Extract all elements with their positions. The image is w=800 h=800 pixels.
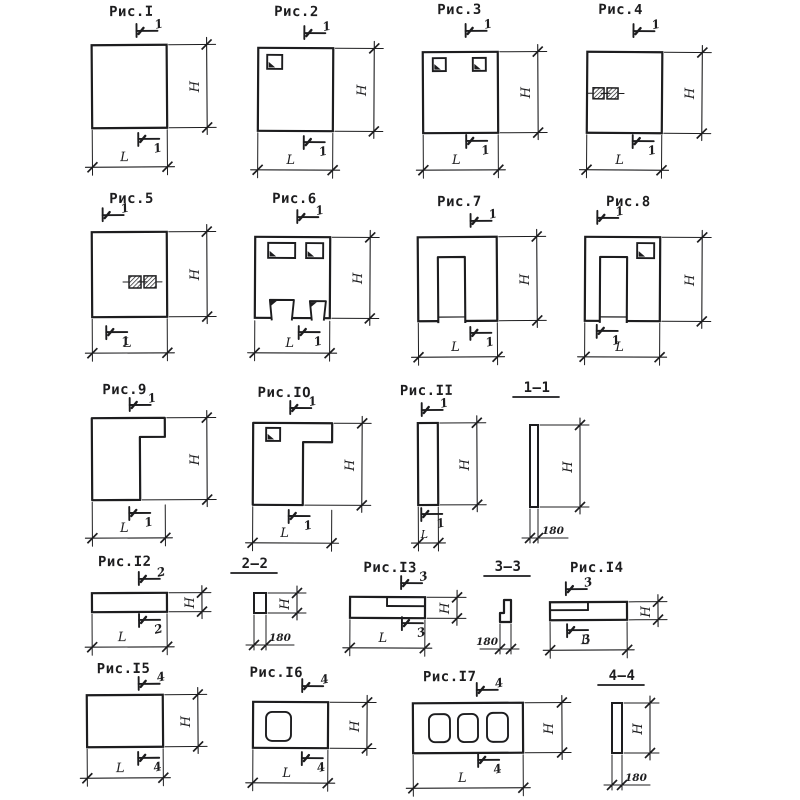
dim-label-l: L [420, 528, 428, 541]
cut-number: 1 [314, 203, 325, 218]
dim-label-h: H [188, 268, 203, 281]
section-profile [254, 593, 266, 613]
figure-ris-15: Рис.I544HL [80, 660, 208, 786]
figure-title: Рис.7 [437, 194, 482, 210]
figure-ris-16: Рис.I644HL [246, 665, 377, 792]
dim-label-l: L [122, 336, 132, 351]
cut-number: 2 [155, 564, 167, 580]
figure-title: Рис.IO [258, 385, 312, 401]
section-view-1-1: 1—1H180 [513, 380, 589, 543]
cut-number: 1 [317, 144, 328, 159]
section-profile [530, 425, 538, 507]
dim-label-l: L [450, 340, 460, 355]
dim-label-thickness: 180 [269, 632, 292, 644]
dim-label-h: H [179, 715, 194, 728]
dim-line [477, 416, 478, 512]
dim-label-thickness: 180 [476, 636, 499, 648]
dim-line [406, 788, 530, 789]
dim-line [580, 170, 669, 171]
drawing-sheet: Рис.I11HLРис.211HLРис.311HLРис.411HLРис.… [0, 0, 800, 800]
dim-label-h: H [542, 722, 557, 735]
dim-label-h: H [518, 273, 533, 286]
section-view-3-3: 3—3180 [476, 559, 530, 654]
figure-title: Рис.3 [437, 2, 482, 18]
sheet-svg: Рис.I11HLРис.211HLРис.311HLРис.411HLРис.… [0, 0, 800, 800]
round-opening [487, 713, 508, 742]
dim-line [537, 229, 538, 327]
figure-title: Рис.4 [598, 2, 643, 18]
dim-label-l: L [580, 633, 590, 648]
figure-title: 1—1 [524, 380, 551, 396]
vent-opening [607, 88, 618, 99]
cut-number: 4 [319, 672, 330, 687]
dim-label-l: L [377, 631, 387, 646]
cut-number: 1 [307, 394, 318, 409]
dim-line [374, 41, 375, 138]
dim-label-thickness: 180 [625, 772, 648, 784]
figure-title: Рис.5 [109, 191, 154, 207]
cut-number: 1 [487, 206, 498, 221]
panel-outline [92, 45, 168, 129]
panel-outline [87, 695, 163, 748]
cut-number: 3 [418, 569, 429, 584]
figure-ris-3: Рис.311HL [415, 2, 547, 179]
figure-ris-4: Рис.411HL [579, 2, 711, 179]
dim-line [702, 230, 703, 328]
cut-number: 4 [493, 675, 504, 690]
figure-title: Рис.I5 [97, 661, 151, 677]
dim-label-l: L [117, 630, 127, 645]
dim-label-h: H [561, 461, 576, 474]
cut-number: 1 [435, 515, 446, 530]
figure-title: Рис.8 [606, 194, 651, 210]
dim-label-h: H [351, 272, 366, 285]
figure-ris-8: Рис.811HL [578, 194, 712, 366]
cut-number: 1 [321, 19, 332, 34]
dim-label-h: H [343, 459, 358, 472]
figure-title: Рис.I [109, 4, 154, 20]
dim-line [207, 225, 208, 324]
dim-label-h: H [183, 596, 198, 609]
section-view-2-2: 2—2H180 [231, 556, 306, 650]
figure-title: 2—2 [242, 556, 269, 572]
cut-number: 4 [155, 669, 166, 684]
figure-title: Рис.I6 [249, 665, 303, 681]
figure-ris-14: Рис.I433HL [543, 560, 668, 659]
dim-label-h: H [188, 80, 203, 93]
dim-line [85, 167, 174, 168]
panel-outline [500, 600, 511, 622]
figure-ris-7: Рис.711HL [410, 193, 546, 365]
dim-label-l: L [281, 766, 291, 781]
dim-label-h: H [639, 605, 654, 618]
section-view-4-4: 4—4H180 [598, 668, 659, 790]
dim-label-l: L [457, 771, 467, 786]
cut-number: 4 [152, 759, 163, 774]
figure-title: Рис.I3 [363, 560, 417, 576]
dim-label-h: H [348, 720, 363, 733]
figure-ris-6: Рис.611HL [248, 191, 380, 362]
dim-label-h: H [683, 87, 698, 100]
panel-outline [253, 423, 332, 505]
dim-line [207, 411, 208, 507]
dim-label-l: L [119, 521, 129, 536]
dim-line [702, 46, 703, 141]
cut-number: 2 [152, 621, 164, 637]
dim-line [412, 357, 505, 358]
panel-outline [418, 423, 438, 505]
dim-line [362, 416, 363, 512]
figure-ris-5: Рис.511HL [85, 191, 217, 362]
figure-ris-13: Рис.I333HL [343, 560, 467, 657]
panel-outline [92, 593, 167, 612]
figure-title: 4—4 [609, 668, 636, 684]
dim-label-l: L [451, 153, 461, 168]
cut-number: 4 [492, 761, 503, 776]
dim-label-h: H [438, 602, 453, 615]
figure-title: Рис.6 [272, 191, 317, 207]
cut-number: 1 [143, 514, 154, 529]
cut-number: 4 [316, 760, 327, 775]
figure-title: Рис.2 [274, 4, 319, 20]
dim-label-h: H [631, 723, 646, 736]
dim-label-l: L [119, 150, 129, 165]
cut-number: 1 [302, 518, 313, 533]
figure-ris-12: Рис.I222HL [85, 554, 212, 656]
cut-number: 1 [482, 16, 493, 31]
section-profile [612, 703, 622, 753]
dim-label-h: H [458, 458, 473, 471]
cut-number: 1 [146, 390, 157, 405]
dim-label-h: H [355, 84, 370, 97]
round-opening [266, 712, 291, 741]
cut-number: 3 [583, 575, 594, 590]
figure-title: Рис.9 [102, 382, 147, 398]
dim-label-h: H [188, 453, 203, 466]
cut-number: 1 [152, 140, 163, 155]
dim-label-h: H [278, 598, 293, 611]
figure-ris-2: Рис.211HL [251, 4, 384, 179]
figure-ris-9: Рис.911HL [85, 382, 217, 547]
dim-label-h: H [519, 86, 534, 99]
panel-outline [92, 418, 165, 500]
dim-line [80, 778, 170, 779]
vent-opening [144, 276, 156, 288]
dim-label-thickness: 180 [542, 525, 565, 537]
figure-ris-11: Рис.II11HL [400, 383, 487, 551]
round-opening [429, 714, 450, 742]
round-opening [458, 714, 478, 742]
cut-number: 1 [650, 17, 661, 32]
figure-title: Рис.I7 [423, 669, 477, 685]
dim-label-h: H [683, 274, 698, 287]
cut-number: 1 [312, 334, 323, 349]
cut-number: 1 [646, 143, 657, 158]
dim-label-l: L [285, 153, 295, 168]
door-opening [438, 257, 465, 324]
dim-label-l: L [279, 526, 289, 541]
figure-title: Рис.I4 [570, 560, 624, 576]
dim-label-l: L [614, 340, 624, 355]
figure-ris-1: Рис.I11HL [84, 3, 216, 175]
panel-outline [92, 232, 167, 317]
cut-number: 1 [480, 142, 491, 157]
figure-ris-17: Рис.I744HL [406, 668, 572, 796]
cut-number: 1 [153, 16, 164, 31]
dim-line [207, 37, 208, 134]
dim-label-l: L [614, 153, 624, 168]
figure-title: 3—3 [495, 559, 522, 575]
dim-label-l: L [115, 761, 125, 776]
dim-label-l: L [284, 336, 294, 351]
figure-title: Рис.I2 [98, 554, 152, 570]
cut-number: 1 [484, 334, 495, 349]
door-opening [600, 257, 627, 324]
figure-ris-10: Рис.IO11HL [246, 385, 372, 552]
